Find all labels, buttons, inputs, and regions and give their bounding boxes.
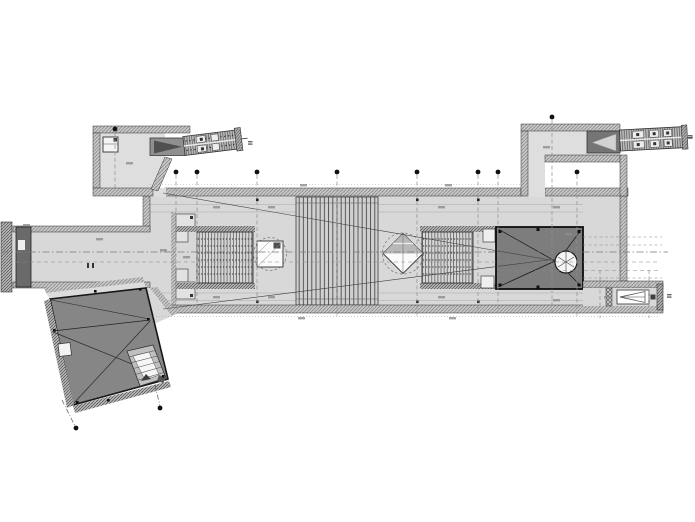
dim-mark [445, 184, 452, 186]
east-exit-corridor [583, 281, 663, 310]
grid-marker-dot [74, 426, 79, 431]
double-height-void [481, 227, 583, 289]
tiny-label [688, 135, 693, 136]
east-entrance [521, 124, 694, 197]
grid-marker-dot [335, 170, 340, 175]
skylight-square [254, 238, 287, 271]
dim-mark [23, 224, 30, 226]
tiny-label [667, 296, 672, 297]
grid-marker-dot [575, 170, 580, 175]
south-entrance-pavilion [44, 277, 178, 426]
dim-mark [553, 299, 560, 301]
tiny-label [248, 141, 253, 142]
dim-mark [213, 296, 220, 298]
tiny-label [688, 137, 693, 138]
grid-marker-dot [496, 170, 501, 175]
grid-marker-dot [415, 170, 420, 175]
grid-marker-dot [174, 170, 179, 175]
dim-mark [268, 296, 275, 298]
grid-marker-dot [158, 406, 163, 411]
dim-mark [543, 146, 550, 148]
dim-mark [298, 317, 305, 319]
tiny-label [248, 143, 253, 144]
dim-mark [438, 206, 445, 208]
dim-mark [604, 296, 611, 298]
grid-marker-dot [255, 170, 260, 175]
dim-mark [268, 206, 275, 208]
dim-mark [183, 256, 190, 258]
dim-mark [96, 238, 103, 240]
grid-marker-dot [195, 170, 200, 175]
service-shaft [16, 227, 31, 287]
dim-mark [126, 162, 133, 164]
floor-plan-canvas [0, 0, 695, 522]
grid-marker-dot [550, 115, 555, 120]
dim-mark [565, 233, 572, 235]
grid-marker-dot [476, 170, 481, 175]
tiny-label [667, 294, 672, 295]
dim-mark [300, 184, 307, 186]
east-escalator-bank [619, 125, 693, 153]
dim-mark [160, 249, 167, 251]
west-escalator-bank [183, 127, 249, 158]
dim-mark [213, 206, 220, 208]
grid-marker-dot [113, 127, 118, 132]
dim-mark [553, 206, 560, 208]
dim-mark [438, 296, 445, 298]
west-entrance [93, 126, 249, 197]
floor-plan-svg [0, 0, 695, 522]
dim-mark [449, 317, 456, 319]
